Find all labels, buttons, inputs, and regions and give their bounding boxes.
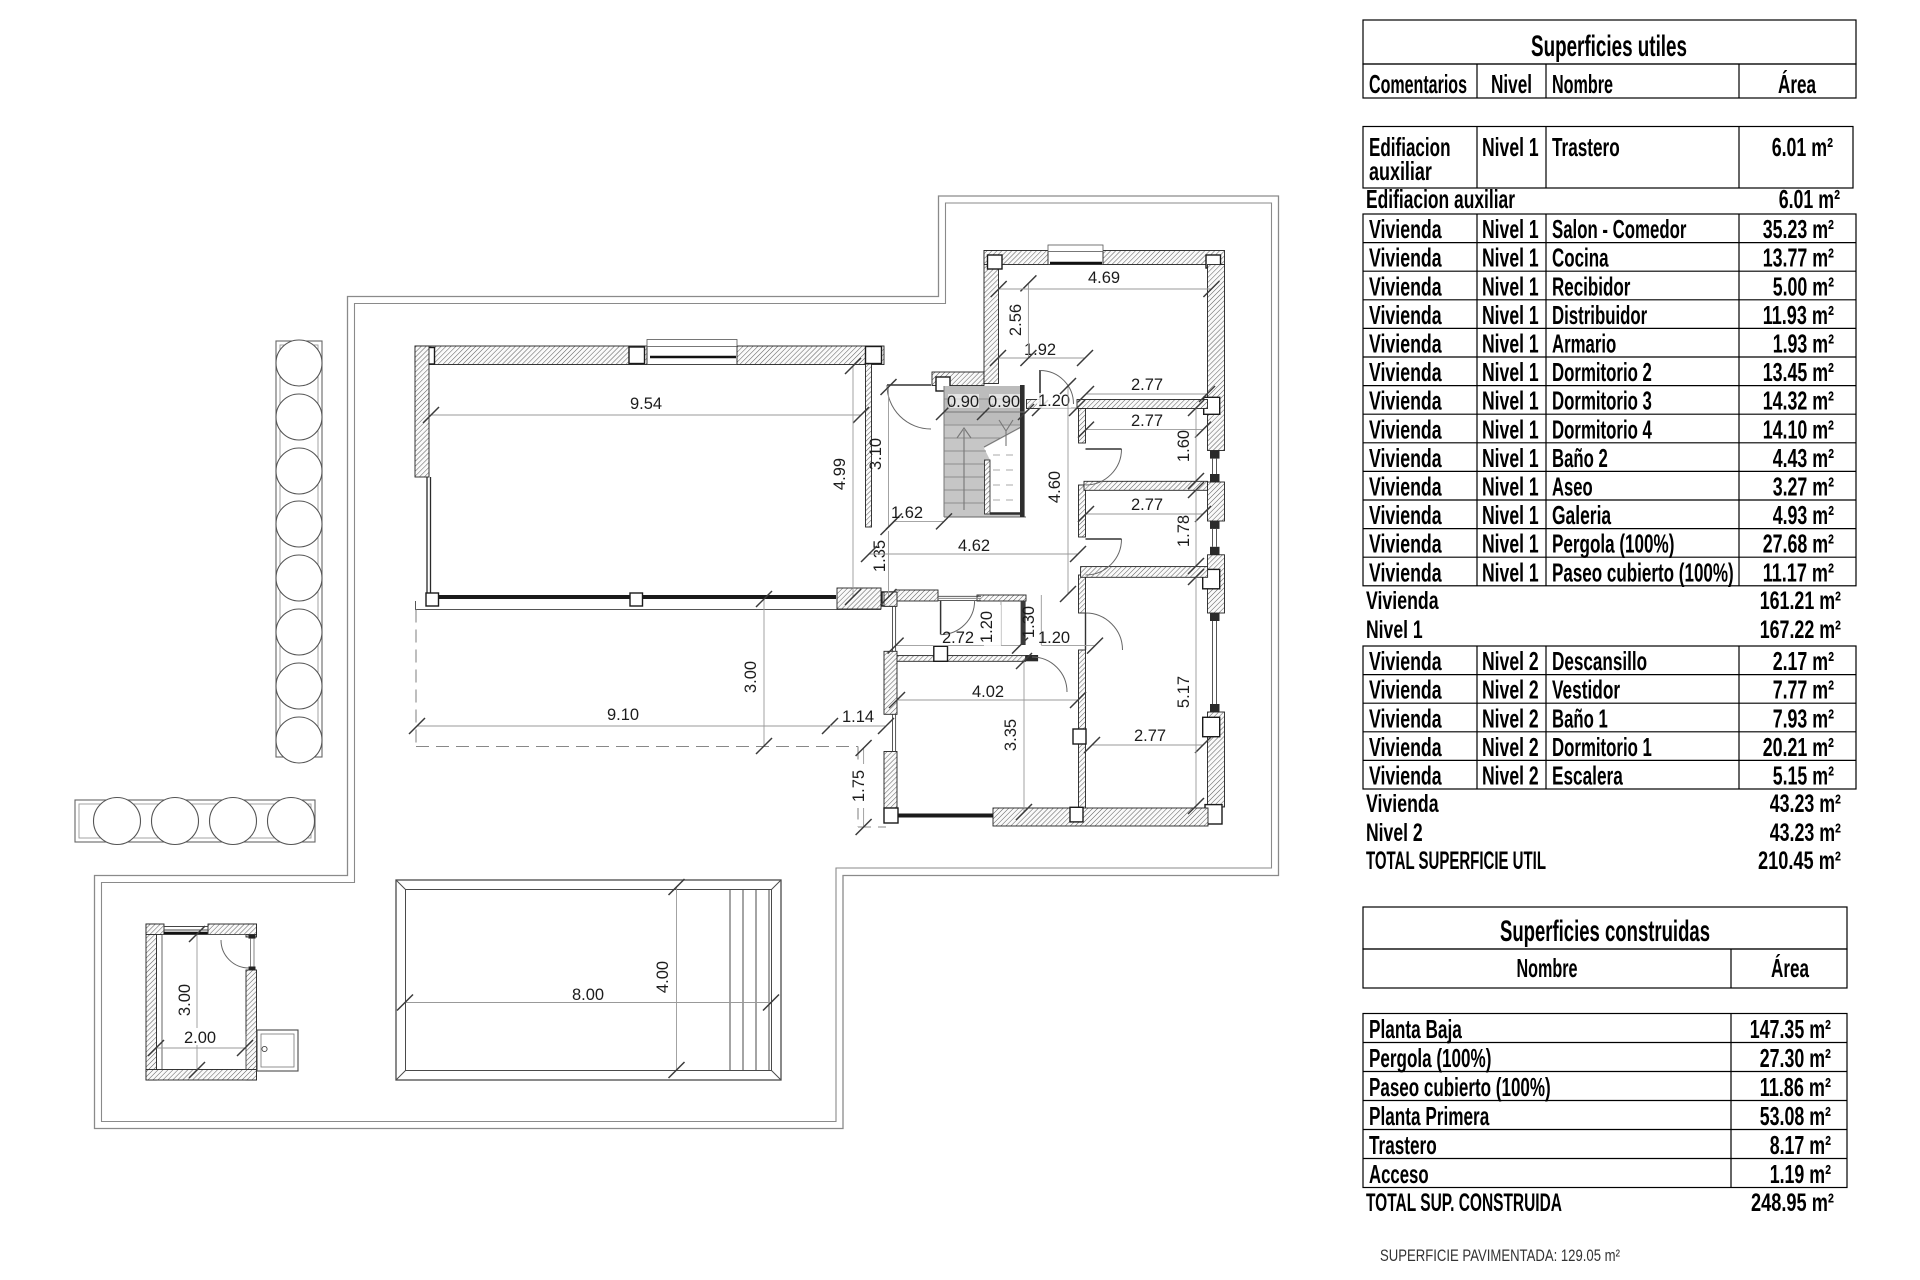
svg-text:4.60: 4.60	[1046, 471, 1064, 503]
svg-text:1.93 m²: 1.93 m²	[1773, 329, 1835, 359]
svg-text:14.32 m²: 14.32 m²	[1763, 386, 1835, 416]
svg-text:11.93 m²: 11.93 m²	[1763, 300, 1835, 330]
svg-text:Vestidor: Vestidor	[1552, 675, 1620, 705]
svg-text:Vivienda: Vivienda	[1369, 557, 1442, 587]
svg-text:6.01 m²: 6.01 m²	[1779, 184, 1841, 214]
svg-text:Nivel 1: Nivel 1	[1482, 357, 1539, 387]
svg-text:9.54: 9.54	[630, 395, 662, 413]
svg-text:Vivienda: Vivienda	[1369, 357, 1442, 387]
svg-text:7.93 m²: 7.93 m²	[1773, 703, 1835, 733]
svg-text:2.17 m²: 2.17 m²	[1773, 646, 1835, 676]
svg-text:11.17 m²: 11.17 m²	[1763, 557, 1835, 587]
svg-text:Nivel 2: Nivel 2	[1482, 675, 1539, 705]
svg-text:Vivienda: Vivienda	[1366, 587, 1439, 615]
svg-text:SUPERFICIE PAVIMENTADA: 129.05: SUPERFICIE PAVIMENTADA: 129.05 m²	[1380, 1246, 1620, 1265]
svg-text:Trastero: Trastero	[1552, 132, 1620, 162]
svg-text:Vivienda: Vivienda	[1369, 529, 1442, 559]
svg-text:1.14: 1.14	[842, 708, 874, 726]
svg-text:3.35: 3.35	[1002, 719, 1020, 751]
svg-text:20.21 m²: 20.21 m²	[1763, 732, 1835, 762]
svg-text:4.02: 4.02	[972, 683, 1004, 701]
svg-text:Nivel 1: Nivel 1	[1482, 386, 1539, 416]
svg-text:Vivienda: Vivienda	[1369, 675, 1442, 705]
svg-text:35.23 m²: 35.23 m²	[1763, 214, 1835, 244]
svg-text:11.86 m²: 11.86 m²	[1760, 1072, 1832, 1102]
svg-text:Nivel 1: Nivel 1	[1482, 443, 1539, 473]
svg-text:Acceso: Acceso	[1369, 1159, 1429, 1189]
svg-text:Dormitorio 2: Dormitorio 2	[1552, 357, 1652, 387]
svg-text:Superficies construidas: Superficies construidas	[1500, 915, 1710, 948]
svg-text:Dormitorio 1: Dormitorio 1	[1552, 732, 1652, 762]
svg-text:1.30: 1.30	[1020, 606, 1038, 638]
svg-text:6.01 m²: 6.01 m²	[1772, 132, 1834, 162]
svg-text:43.23 m²: 43.23 m²	[1770, 790, 1841, 818]
svg-text:2.77: 2.77	[1131, 376, 1163, 394]
svg-text:Baño 2: Baño 2	[1552, 443, 1608, 473]
svg-text:27.30 m²: 27.30 m²	[1760, 1043, 1832, 1073]
svg-text:1.20: 1.20	[1038, 392, 1070, 410]
svg-text:Planta Primera: Planta Primera	[1369, 1101, 1490, 1131]
svg-text:Nivel 1: Nivel 1	[1482, 557, 1539, 587]
svg-text:Nombre: Nombre	[1552, 69, 1613, 99]
svg-text:2.77: 2.77	[1131, 496, 1163, 514]
svg-text:3.00: 3.00	[176, 984, 194, 1016]
svg-text:Planta Baja: Planta Baja	[1369, 1014, 1462, 1044]
svg-text:Escalera: Escalera	[1552, 761, 1623, 791]
svg-text:4.69: 4.69	[1088, 269, 1120, 287]
svg-text:Trastero: Trastero	[1369, 1130, 1437, 1160]
svg-text:Nivel 1: Nivel 1	[1482, 300, 1539, 330]
svg-text:8.00: 8.00	[572, 986, 604, 1004]
svg-text:Recibidor: Recibidor	[1552, 271, 1630, 301]
svg-text:5.17: 5.17	[1175, 676, 1193, 708]
svg-text:2.56: 2.56	[1007, 304, 1025, 336]
svg-text:Armario: Armario	[1552, 329, 1616, 359]
svg-text:Pergola (100%): Pergola (100%)	[1369, 1043, 1491, 1073]
svg-text:Dormitorio 4: Dormitorio 4	[1552, 414, 1652, 444]
svg-text:Vivienda: Vivienda	[1366, 790, 1439, 818]
svg-text:Galeria: Galeria	[1552, 500, 1611, 530]
svg-text:Comentarios: Comentarios	[1369, 69, 1467, 99]
svg-text:1.78: 1.78	[1175, 515, 1193, 547]
svg-text:0.90: 0.90	[988, 393, 1020, 411]
svg-text:Vivienda: Vivienda	[1369, 472, 1442, 502]
svg-text:Vivienda: Vivienda	[1369, 414, 1442, 444]
svg-text:Vivienda: Vivienda	[1369, 243, 1442, 273]
svg-text:Vivienda: Vivienda	[1369, 271, 1442, 301]
svg-text:3.27 m²: 3.27 m²	[1773, 472, 1835, 502]
svg-text:Aseo: Aseo	[1552, 472, 1593, 502]
svg-text:Edifiacion auxiliar: Edifiacion auxiliar	[1366, 184, 1515, 214]
svg-text:Nivel 1: Nivel 1	[1366, 616, 1423, 644]
svg-text:43.23 m²: 43.23 m²	[1770, 819, 1841, 847]
svg-text:Vivienda: Vivienda	[1369, 300, 1442, 330]
svg-text:4.62: 4.62	[958, 537, 990, 555]
svg-text:Nivel 2: Nivel 2	[1482, 732, 1539, 762]
svg-text:Nivel 1: Nivel 1	[1482, 243, 1539, 273]
svg-text:5.15 m²: 5.15 m²	[1773, 761, 1835, 791]
svg-text:9.10: 9.10	[607, 706, 639, 724]
svg-text:Descansillo: Descansillo	[1552, 646, 1647, 676]
svg-text:8.17 m²: 8.17 m²	[1770, 1130, 1832, 1160]
svg-text:Nivel 1: Nivel 1	[1482, 414, 1539, 444]
svg-text:Salon - Comedor: Salon - Comedor	[1552, 214, 1686, 244]
svg-text:2.72: 2.72	[942, 629, 974, 647]
svg-text:Cocina: Cocina	[1552, 243, 1609, 273]
svg-text:Nivel 2: Nivel 2	[1482, 703, 1539, 733]
svg-text:1.20: 1.20	[978, 611, 996, 643]
svg-text:2.77: 2.77	[1134, 727, 1166, 745]
svg-text:27.68 m²: 27.68 m²	[1763, 529, 1835, 559]
svg-text:210.45 m²: 210.45 m²	[1758, 847, 1841, 875]
svg-text:Vivienda: Vivienda	[1369, 443, 1442, 473]
svg-text:1.75: 1.75	[850, 770, 868, 802]
svg-text:Vivienda: Vivienda	[1369, 500, 1442, 530]
svg-text:Vivienda: Vivienda	[1369, 329, 1442, 359]
svg-text:Nivel 1: Nivel 1	[1482, 132, 1539, 162]
svg-text:147.35 m²: 147.35 m²	[1750, 1014, 1832, 1044]
svg-text:Vivienda: Vivienda	[1369, 386, 1442, 416]
svg-text:Área: Área	[1778, 69, 1816, 99]
svg-text:Nivel: Nivel	[1491, 69, 1532, 99]
svg-text:5.00 m²: 5.00 m²	[1773, 271, 1835, 301]
svg-text:Vivienda: Vivienda	[1369, 732, 1442, 762]
svg-text:Paseo cubierto (100%): Paseo cubierto (100%)	[1369, 1072, 1551, 1102]
svg-text:14.10 m²: 14.10 m²	[1763, 414, 1835, 444]
svg-text:167.22 m²: 167.22 m²	[1760, 616, 1841, 644]
svg-text:1.35: 1.35	[871, 540, 889, 572]
svg-text:Nivel 1: Nivel 1	[1482, 214, 1539, 244]
svg-text:Vivienda: Vivienda	[1369, 703, 1442, 733]
svg-text:1.19 m²: 1.19 m²	[1770, 1159, 1832, 1189]
svg-text:Nombre: Nombre	[1517, 953, 1578, 983]
svg-text:Vivienda: Vivienda	[1369, 214, 1442, 244]
svg-text:Superficies utiles: Superficies utiles	[1531, 30, 1687, 63]
svg-text:1.60: 1.60	[1175, 430, 1193, 462]
svg-text:3.00: 3.00	[742, 661, 760, 693]
svg-text:3.10: 3.10	[867, 438, 885, 470]
svg-text:2.77: 2.77	[1131, 412, 1163, 430]
svg-text:auxiliar: auxiliar	[1369, 156, 1432, 186]
svg-text:248.95 m²: 248.95 m²	[1751, 1189, 1834, 1217]
svg-text:Pergola (100%): Pergola (100%)	[1552, 529, 1674, 559]
svg-text:Baño 1: Baño 1	[1552, 703, 1608, 733]
svg-text:1.20: 1.20	[1038, 629, 1070, 647]
svg-text:Nivel 1: Nivel 1	[1482, 271, 1539, 301]
svg-text:TOTAL SUP. CONSTRUIDA: TOTAL SUP. CONSTRUIDA	[1366, 1189, 1562, 1217]
svg-text:Nivel 2: Nivel 2	[1482, 646, 1539, 676]
svg-text:13.77 m²: 13.77 m²	[1763, 243, 1835, 273]
svg-text:TOTAL SUPERFICIE UTIL: TOTAL SUPERFICIE UTIL	[1366, 847, 1546, 875]
svg-text:Nivel 1: Nivel 1	[1482, 329, 1539, 359]
svg-text:Vivienda: Vivienda	[1369, 646, 1442, 676]
svg-text:Nivel 2: Nivel 2	[1366, 819, 1423, 847]
svg-text:Nivel 1: Nivel 1	[1482, 500, 1539, 530]
svg-text:4.00: 4.00	[654, 961, 672, 993]
svg-text:Área: Área	[1771, 953, 1809, 983]
svg-text:0.90: 0.90	[947, 393, 979, 411]
svg-text:2.00: 2.00	[184, 1029, 216, 1047]
svg-text:161.21 m²: 161.21 m²	[1760, 587, 1841, 615]
svg-text:Nivel 1: Nivel 1	[1482, 529, 1539, 559]
svg-text:7.77 m²: 7.77 m²	[1773, 675, 1835, 705]
svg-text:4.43 m²: 4.43 m²	[1773, 443, 1835, 473]
svg-text:1.62: 1.62	[891, 504, 923, 522]
svg-text:53.08 m²: 53.08 m²	[1760, 1101, 1832, 1131]
svg-text:Nivel 1: Nivel 1	[1482, 472, 1539, 502]
svg-text:4.99: 4.99	[831, 458, 849, 490]
svg-text:4.93 m²: 4.93 m²	[1773, 500, 1835, 530]
svg-text:Dormitorio 3: Dormitorio 3	[1552, 386, 1652, 416]
svg-text:Nivel 2: Nivel 2	[1482, 761, 1539, 791]
svg-text:Vivienda: Vivienda	[1369, 761, 1442, 791]
svg-text:Distribuidor: Distribuidor	[1552, 300, 1647, 330]
svg-text:Paseo cubierto (100%): Paseo cubierto (100%)	[1552, 557, 1734, 587]
svg-text:13.45 m²: 13.45 m²	[1763, 357, 1835, 387]
